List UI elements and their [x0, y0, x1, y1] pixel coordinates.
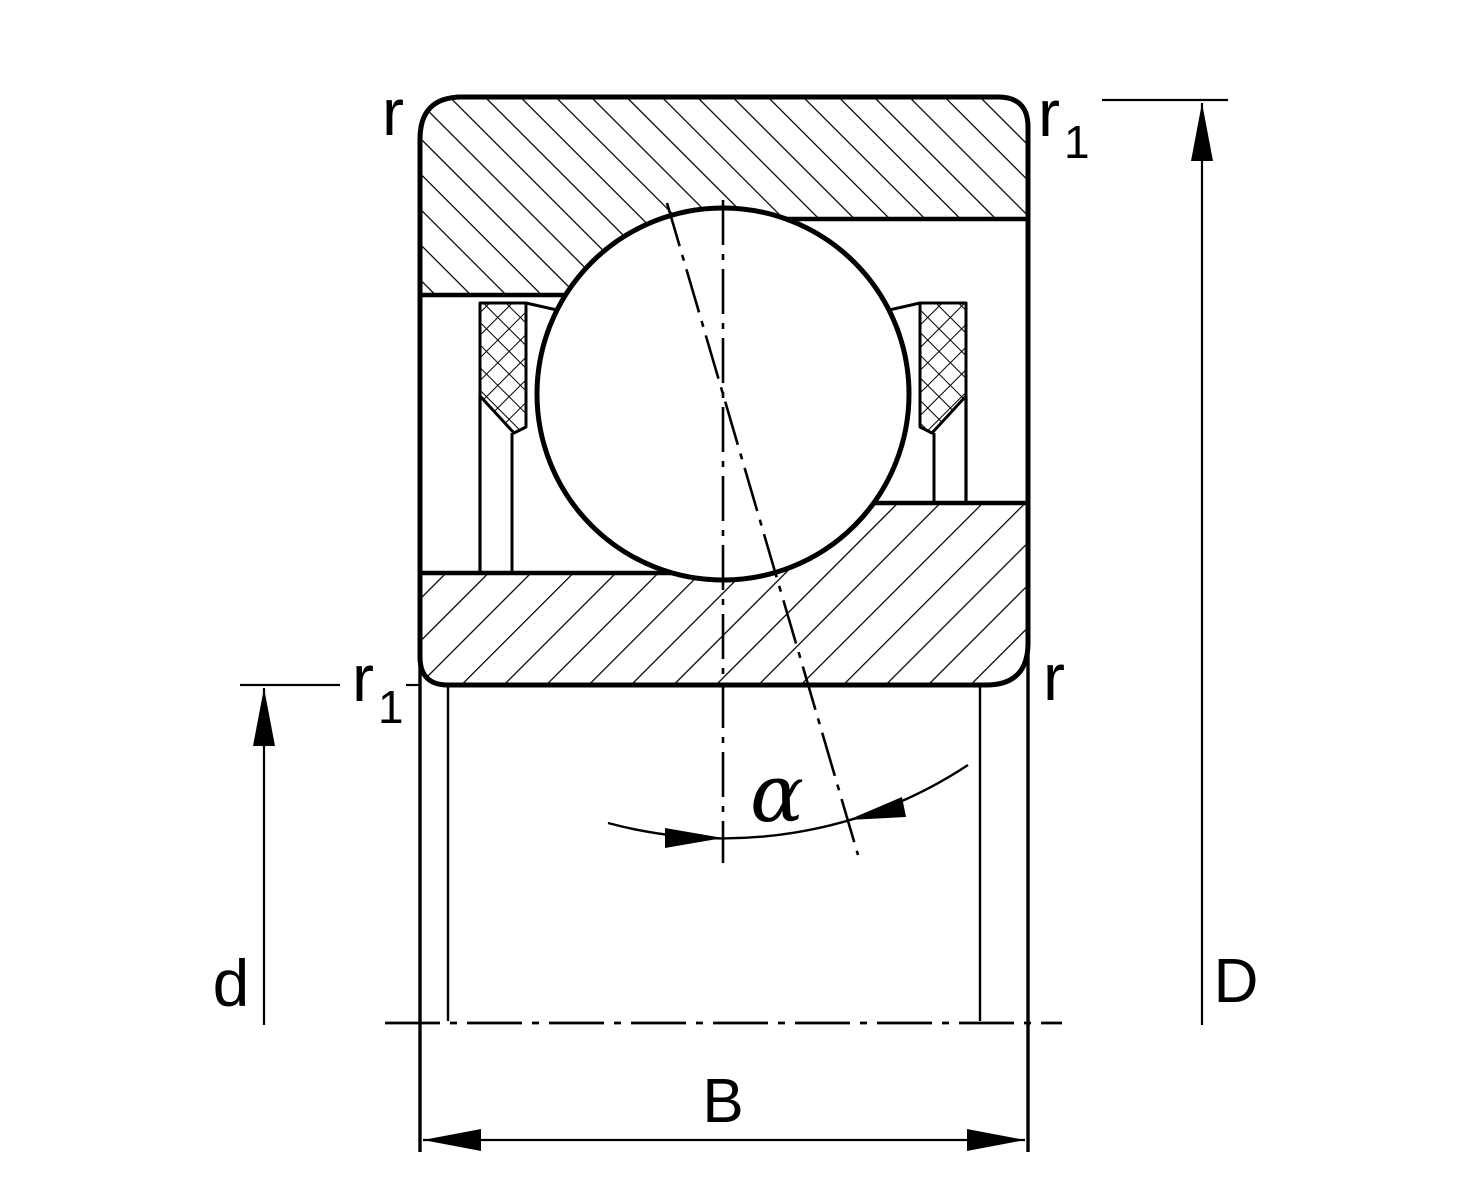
label-alpha: α	[750, 747, 804, 840]
label-r1-bottom-left-sub: 1	[378, 681, 404, 733]
d-arrowhead	[253, 688, 275, 746]
B-arrowhead-right	[967, 1129, 1025, 1151]
bearing-diagram: r r 1 r 1 r α d D B	[0, 0, 1466, 1200]
right-seal-body	[920, 303, 966, 433]
label-r1-bottom-left-base: r	[352, 641, 374, 715]
label-d: d	[213, 946, 250, 1020]
left-seal-body	[480, 303, 526, 433]
dimension-d	[240, 685, 419, 1025]
contact-angle-arrow-left	[665, 828, 723, 848]
B-arrowhead-left	[423, 1129, 481, 1151]
D-arrowhead	[1191, 103, 1213, 161]
dimension-D	[1102, 100, 1228, 1025]
contact-angle-arrow-right	[848, 797, 906, 820]
left-seal-top-lip	[526, 303, 557, 310]
label-r1-top-right-base: r	[1038, 76, 1060, 150]
right-seal-top-lip	[889, 303, 920, 310]
label-r-bottom-right: r	[1043, 640, 1065, 714]
label-D: D	[1214, 947, 1259, 1016]
label-r1-top-right-sub: 1	[1064, 116, 1090, 168]
label-r-top-left: r	[382, 75, 404, 149]
label-B: B	[702, 1067, 743, 1136]
